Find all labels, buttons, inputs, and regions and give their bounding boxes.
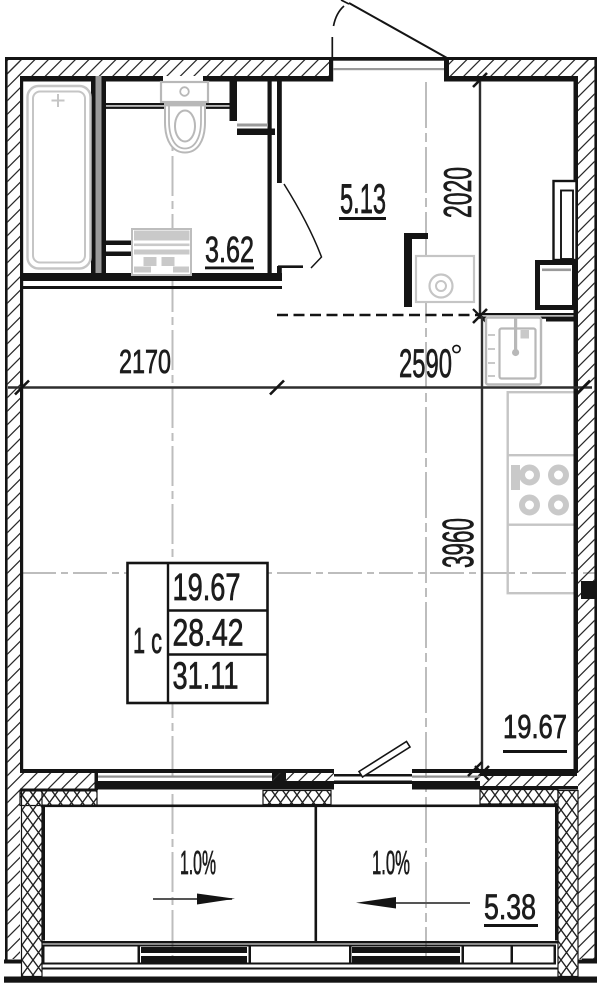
svg-text:2020: 2020 bbox=[437, 167, 480, 218]
svg-text:31.11: 31.11 bbox=[173, 656, 239, 698]
svg-text:19.67: 19.67 bbox=[503, 708, 567, 745]
svg-text:5.13: 5.13 bbox=[340, 175, 386, 222]
svg-text:3.62: 3.62 bbox=[205, 229, 254, 270]
svg-text:19.67: 19.67 bbox=[173, 567, 241, 609]
svg-text:5.38: 5.38 bbox=[484, 888, 536, 927]
svg-text:1 с: 1 с bbox=[133, 620, 162, 661]
svg-text:2170: 2170 bbox=[119, 343, 171, 380]
svg-text:2590: 2590 bbox=[399, 342, 452, 386]
svg-text:1.0%: 1.0% bbox=[372, 844, 410, 881]
svg-text:1.0%: 1.0% bbox=[180, 844, 216, 881]
svg-text:28.42: 28.42 bbox=[173, 613, 244, 655]
svg-text:3960: 3960 bbox=[434, 518, 483, 568]
